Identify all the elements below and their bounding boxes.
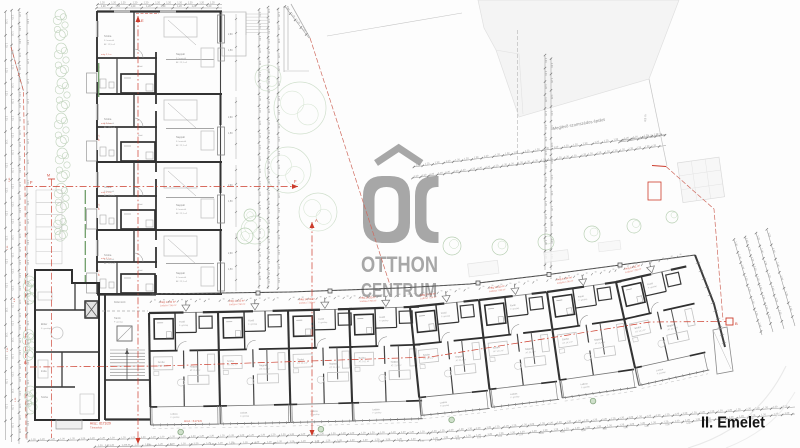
svg-text:1,20: 1,20 <box>267 159 270 164</box>
svg-text:90: 90 <box>408 294 410 296</box>
svg-text:1,20: 1,20 <box>191 435 196 438</box>
svg-text:1,20: 1,20 <box>550 111 553 116</box>
svg-text:1,20: 1,20 <box>267 39 270 44</box>
svg-text:1,20: 1,20 <box>90 437 95 440</box>
svg-text:1,20: 1,20 <box>550 239 553 244</box>
svg-text:1,20: 1,20 <box>26 260 29 265</box>
svg-text:1,20: 1,20 <box>544 151 547 156</box>
svg-text:1,20: 1,20 <box>131 436 136 439</box>
svg-text:90: 90 <box>527 281 529 283</box>
svg-text:1,20: 1,20 <box>170 443 175 446</box>
svg-text:MF 1,2: MF 1,2 <box>99 134 101 141</box>
svg-text:1,20: 1,20 <box>420 430 425 433</box>
svg-text:1,20: 1,20 <box>26 99 29 104</box>
svg-text:2,60: 2,60 <box>228 34 233 36</box>
svg-text:1,20: 1,20 <box>350 432 355 435</box>
svg-text:Nappali: Nappali <box>176 203 185 207</box>
svg-text:1,50: 1,50 <box>228 133 233 135</box>
svg-text:1,20: 1,20 <box>18 39 21 44</box>
svg-text:1,20: 1,20 <box>544 201 547 206</box>
svg-text:1,20: 1,20 <box>267 18 270 23</box>
svg-text:1,20: 1,20 <box>290 440 295 443</box>
svg-text:1,20: 1,20 <box>267 79 270 84</box>
svg-text:1,20: 1,20 <box>5 91 8 96</box>
svg-text:1,20: 1,20 <box>26 139 29 144</box>
svg-text:Lodzsa: Lodzsa <box>240 412 248 414</box>
svg-text:90: 90 <box>536 280 538 282</box>
svg-text:90: 90 <box>241 298 243 300</box>
svg-text:AT: 12,5 m²: AT: 12,5 m² <box>104 194 115 197</box>
svg-text:1,20: 1,20 <box>258 96 261 101</box>
svg-text:2,60: 2,60 <box>228 117 233 119</box>
svg-text:1,50: 1,50 <box>228 269 233 271</box>
svg-text:1,20: 1,20 <box>11 269 14 274</box>
svg-text:1,20: 1,20 <box>26 180 29 185</box>
svg-text:1,20: 1,20 <box>258 60 261 65</box>
svg-text:1,20: 1,20 <box>11 286 14 291</box>
svg-text:1,20: 1,20 <box>267 68 270 73</box>
svg-text:1,20: 1,20 <box>267 209 270 214</box>
svg-text:Iroda: Iroda <box>41 370 47 373</box>
svg-text:1,20: 1,20 <box>277 193 280 198</box>
svg-text:4,5 m: 4,5 m <box>643 114 647 122</box>
svg-text:1,20: 1,20 <box>5 236 8 241</box>
svg-text:1,20: 1,20 <box>544 137 547 142</box>
svg-text:MF 1,2: MF 1,2 <box>99 203 101 210</box>
svg-text:90: 90 <box>232 298 234 300</box>
svg-text:90: 90 <box>399 294 401 296</box>
svg-text:90: 90 <box>679 254 681 256</box>
svg-text:1,20: 1,20 <box>18 247 21 252</box>
svg-text:90: 90 <box>250 298 252 300</box>
svg-text:90: 90 <box>491 285 493 287</box>
svg-text:1,20: 1,20 <box>26 240 29 245</box>
svg-text:1,20: 1,20 <box>267 270 270 275</box>
svg-text:Nappali: Nappali <box>190 365 199 368</box>
svg-text:90: 90 <box>338 296 340 298</box>
svg-text:1,20: 1,20 <box>11 202 14 207</box>
svg-text:1,20: 1,20 <box>267 58 270 63</box>
svg-text:1,20: 1,20 <box>18 103 21 108</box>
svg-text:1,20: 1,20 <box>544 111 547 116</box>
svg-text:1,20: 1,20 <box>258 241 261 246</box>
svg-text:1,20: 1,20 <box>267 120 270 125</box>
svg-text:90: 90 <box>181 299 183 301</box>
svg-text:1,20: 1,20 <box>98 444 103 447</box>
svg-text:1,20: 1,20 <box>26 421 29 426</box>
svg-text:Közl.: Közl. <box>138 204 143 206</box>
svg-text:OTTHON: OTTHON <box>361 252 438 277</box>
svg-text:1,20: 1,20 <box>166 2 171 5</box>
svg-text:1,20: 1,20 <box>544 97 547 102</box>
svg-text:1,20: 1,20 <box>18 403 21 408</box>
svg-text:1,20: 1,20 <box>18 12 21 17</box>
svg-text:1,20: 1,20 <box>409 431 414 434</box>
svg-text:1,20: 1,20 <box>267 49 270 54</box>
svg-text:90: 90 <box>414 293 416 295</box>
svg-text:1,20: 1,20 <box>18 221 21 226</box>
svg-text:90: 90 <box>381 294 383 296</box>
svg-text:90: 90 <box>603 270 605 272</box>
svg-text:1,20: 1,20 <box>26 120 29 125</box>
svg-text:1,20: 1,20 <box>267 99 270 104</box>
svg-text:1,20: 1,20 <box>375 438 380 441</box>
svg-text:1,20: 1,20 <box>18 156 21 161</box>
svg-text:még 2,1 m: még 2,1 m <box>101 54 112 56</box>
svg-text:F: greslap: F: greslap <box>372 412 382 414</box>
svg-text:1,20: 1,20 <box>281 433 286 436</box>
svg-text:1,20: 1,20 <box>380 431 385 434</box>
svg-text:1,20: 1,20 <box>260 433 265 436</box>
svg-text:1,20: 1,20 <box>5 332 8 337</box>
svg-text:AT: 21,4 m²: AT: 21,4 m² <box>329 366 340 369</box>
svg-text:1,20: 1,20 <box>50 438 55 441</box>
svg-text:1,50: 1,50 <box>228 201 233 203</box>
svg-text:1,20: 1,20 <box>550 175 553 180</box>
svg-text:90: 90 <box>618 267 620 269</box>
svg-text:1,20: 1,20 <box>258 205 261 210</box>
svg-text:1,20: 1,20 <box>544 58 547 63</box>
svg-text:F: laminált: F: laminált <box>176 208 186 211</box>
svg-text:Közl.: Közl. <box>138 66 143 68</box>
svg-text:1,20: 1,20 <box>243 441 248 444</box>
svg-text:1,20: 1,20 <box>18 286 21 291</box>
svg-text:90: 90 <box>172 299 174 301</box>
svg-text:Hrsz.: 6171/9: Hrsz.: 6171/9 <box>184 419 202 423</box>
svg-text:1,20: 1,20 <box>391 431 396 434</box>
svg-text:90: 90 <box>347 296 349 298</box>
svg-text:1,20: 1,20 <box>60 437 65 440</box>
svg-text:1,20: 1,20 <box>289 433 294 436</box>
svg-text:1,20: 1,20 <box>5 355 8 360</box>
svg-text:1,20: 1,20 <box>11 65 14 70</box>
svg-text:Fürdő: Fürdő <box>379 316 386 319</box>
svg-text:90: 90 <box>586 273 588 275</box>
svg-text:90: 90 <box>627 265 629 267</box>
svg-text:1,20: 1,20 <box>277 250 280 255</box>
svg-text:1,20: 1,20 <box>11 321 14 326</box>
svg-text:Tároló: Tároló <box>114 317 121 320</box>
svg-text:1,20: 1,20 <box>18 415 21 420</box>
svg-text:1,20: 1,20 <box>40 438 45 441</box>
svg-text:Nappali: Nappali <box>329 362 338 365</box>
svg-text:1,20: 1,20 <box>11 372 14 377</box>
svg-text:Lodzsa: Lodzsa <box>372 409 380 411</box>
svg-text:1,20: 1,20 <box>544 240 547 245</box>
svg-text:1,20: 1,20 <box>363 439 368 442</box>
svg-text:1,20: 1,20 <box>258 108 261 113</box>
svg-text:F: laminált: F: laminált <box>104 39 114 42</box>
svg-text:F: F <box>294 179 297 184</box>
svg-text:1,20: 1,20 <box>11 168 14 173</box>
svg-text:90: 90 <box>390 294 392 296</box>
svg-text:1,20: 1,20 <box>18 130 21 135</box>
svg-text:Szoba: Szoba <box>104 117 112 121</box>
svg-text:1,20: 1,20 <box>26 321 29 326</box>
svg-text:1,20: 1,20 <box>11 388 14 393</box>
svg-text:1,20: 1,20 <box>258 168 261 173</box>
svg-text:1,20: 1,20 <box>258 156 261 161</box>
svg-text:90: 90 <box>500 284 502 286</box>
svg-text:1,20: 1,20 <box>267 89 270 94</box>
svg-text:90: 90 <box>199 299 201 301</box>
svg-text:90: 90 <box>644 262 646 264</box>
svg-text:90: 90 <box>440 290 442 292</box>
svg-text:90: 90 <box>595 271 597 273</box>
svg-text:1,20: 1,20 <box>18 92 21 97</box>
svg-text:90: 90 <box>329 296 331 298</box>
svg-text:Lodzsa 7,56 m²: Lodzsa 7,56 m² <box>360 299 377 303</box>
svg-text:1,20: 1,20 <box>277 264 280 269</box>
svg-text:1,20: 1,20 <box>18 338 21 343</box>
svg-text:1,20: 1,20 <box>5 43 8 48</box>
svg-text:Fürdő: Fürdő <box>318 318 325 321</box>
svg-text:Szoba: Szoba <box>104 185 112 189</box>
svg-text:1,20: 1,20 <box>101 5 106 8</box>
svg-text:Lodzsa: Lodzsa <box>170 414 178 416</box>
svg-text:1,20: 1,20 <box>5 283 8 288</box>
svg-text:90: 90 <box>163 299 165 301</box>
svg-text:1,20: 1,20 <box>277 124 280 129</box>
svg-text:90: 90 <box>259 298 261 300</box>
svg-text:1,20: 1,20 <box>11 235 14 240</box>
svg-text:1,20: 1,20 <box>277 137 280 142</box>
svg-text:1,20: 1,20 <box>18 350 21 355</box>
svg-text:1,20: 1,20 <box>550 78 553 83</box>
svg-text:1,20: 1,20 <box>370 431 375 434</box>
svg-text:AT: 22,1 m²: AT: 22,1 m² <box>176 61 187 64</box>
svg-text:1,20: 1,20 <box>277 53 280 58</box>
svg-text:90: 90 <box>482 286 484 288</box>
svg-text:1,20: 1,20 <box>192 5 197 8</box>
svg-text:1,20: 1,20 <box>229 434 234 437</box>
svg-text:Közl.: Közl. <box>138 270 143 272</box>
svg-text:1,20: 1,20 <box>267 130 270 135</box>
svg-text:A: A <box>315 218 318 223</box>
svg-text:1,20: 1,20 <box>258 181 261 186</box>
svg-text:1,20: 1,20 <box>267 200 270 205</box>
svg-text:AT: 12,5 m²: AT: 12,5 m² <box>104 262 115 265</box>
svg-text:90: 90 <box>467 288 469 290</box>
svg-text:1,20: 1,20 <box>11 405 14 410</box>
svg-text:1,20: 1,20 <box>267 108 270 113</box>
svg-text:1,20: 1,20 <box>18 260 21 265</box>
svg-text:Nappali: Nappali <box>176 135 185 139</box>
svg-text:2,60: 2,60 <box>228 253 233 255</box>
svg-text:1,20: 1,20 <box>5 404 8 409</box>
svg-text:90: 90 <box>449 289 451 291</box>
svg-text:1,20: 1,20 <box>267 259 270 264</box>
svg-text:Előtér: Előtér <box>41 323 47 326</box>
svg-text:1,20: 1,20 <box>26 281 29 286</box>
svg-text:90: 90 <box>423 292 425 294</box>
svg-text:Szoba: Szoba <box>104 34 112 38</box>
svg-text:1,20: 1,20 <box>26 159 29 164</box>
svg-text:MF 1,2: MF 1,2 <box>99 269 101 276</box>
svg-text:1,20: 1,20 <box>209 434 214 437</box>
svg-text:1,20: 1,20 <box>18 168 21 173</box>
svg-text:1,20: 1,20 <box>544 188 547 193</box>
svg-text:1,20: 1,20 <box>350 439 355 442</box>
svg-text:1,20: 1,20 <box>267 219 270 224</box>
svg-text:1,20: 1,20 <box>550 221 553 226</box>
svg-text:1,20: 1,20 <box>267 190 270 195</box>
svg-text:Lodzsa: Lodzsa <box>310 411 318 413</box>
svg-text:1,20: 1,20 <box>26 380 29 385</box>
svg-text:1,20: 1,20 <box>199 435 204 438</box>
svg-text:1,20: 1,20 <box>337 439 342 442</box>
svg-text:1,20: 1,20 <box>18 428 21 433</box>
svg-text:1,20: 1,20 <box>11 116 14 121</box>
svg-text:F: greslap: F: greslap <box>240 416 250 418</box>
svg-text:1,20: 1,20 <box>18 182 21 187</box>
svg-text:még 2,1 m: még 2,1 m <box>101 258 112 260</box>
svg-text:90: 90 <box>653 260 655 262</box>
svg-text:1,20: 1,20 <box>5 139 8 144</box>
svg-text:1,20: 1,20 <box>18 233 21 238</box>
svg-text:Lodzsa 7,56 m²: Lodzsa 7,56 m² <box>160 304 177 307</box>
svg-text:AT: 22,1 m²: AT: 22,1 m² <box>176 280 187 283</box>
svg-text:1,20: 1,20 <box>267 169 270 174</box>
svg-text:Szoba: Szoba <box>104 253 112 257</box>
svg-text:1,20: 1,20 <box>18 117 21 122</box>
svg-text:90: 90 <box>154 300 156 302</box>
svg-text:1,20: 1,20 <box>18 273 21 278</box>
svg-text:1,20: 1,20 <box>11 83 14 88</box>
svg-text:1,20: 1,20 <box>277 38 280 43</box>
svg-text:1,20: 1,20 <box>206 442 211 445</box>
svg-text:1,20: 1,20 <box>146 5 151 8</box>
svg-text:90: 90 <box>302 297 304 299</box>
svg-text:1,20: 1,20 <box>18 208 21 213</box>
svg-text:1,20: 1,20 <box>267 279 270 284</box>
svg-text:AT: 14,1 m²: AT: 14,1 m² <box>359 360 370 363</box>
svg-text:1,20: 1,20 <box>5 307 8 312</box>
svg-text:Hrsz.: 6171/29: Hrsz.: 6171/29 <box>90 422 111 426</box>
svg-text:még 2,1 m: még 2,1 m <box>101 123 112 125</box>
svg-text:1,20: 1,20 <box>267 8 270 13</box>
svg-text:1,20: 1,20 <box>220 434 225 437</box>
svg-text:1,20: 1,20 <box>277 235 280 240</box>
svg-text:1,20: 1,20 <box>258 72 261 77</box>
svg-text:1,20: 1,20 <box>177 5 182 8</box>
svg-text:1,20: 1,20 <box>277 440 282 443</box>
svg-text:1,20: 1,20 <box>134 443 139 446</box>
svg-text:1,20: 1,20 <box>131 5 136 8</box>
svg-text:1,20: 1,20 <box>301 433 306 436</box>
svg-text:1,20: 1,20 <box>11 133 14 138</box>
svg-text:Szoba: Szoba <box>158 361 165 364</box>
svg-text:1,20: 1,20 <box>18 26 21 31</box>
svg-text:90: 90 <box>363 295 365 297</box>
svg-text:F: greslap: F: greslap <box>41 327 52 330</box>
svg-text:1,20: 1,20 <box>70 437 75 440</box>
svg-text:1,20: 1,20 <box>151 436 156 439</box>
svg-text:Szoba: Szoba <box>227 360 235 363</box>
svg-text:1,20: 1,20 <box>18 313 21 318</box>
svg-text:Lodzsa 7,56 m²: Lodzsa 7,56 m² <box>299 301 316 304</box>
svg-text:1,20: 1,20 <box>26 59 29 64</box>
svg-text:90: 90 <box>190 299 192 301</box>
svg-text:1,20: 1,20 <box>158 443 163 446</box>
svg-text:1,20: 1,20 <box>5 188 8 193</box>
svg-text:1,20: 1,20 <box>170 435 175 438</box>
svg-text:1,20: 1,20 <box>550 191 553 196</box>
svg-text:1,20: 1,20 <box>26 201 29 206</box>
svg-text:90: 90 <box>432 291 434 293</box>
svg-text:B: B <box>735 321 738 326</box>
svg-text:F: laminált: F: laminált <box>176 140 186 143</box>
svg-text:1,20: 1,20 <box>258 217 261 222</box>
svg-text:1,20: 1,20 <box>258 83 261 88</box>
svg-text:1,20: 1,20 <box>267 149 270 154</box>
svg-text:1,20: 1,20 <box>341 432 346 435</box>
svg-text:90: 90 <box>268 298 270 300</box>
svg-text:90: 90 <box>550 278 552 280</box>
svg-text:F: laminált: F: laminált <box>176 276 186 279</box>
svg-text:1,20: 1,20 <box>401 431 406 434</box>
svg-text:1,20: 1,20 <box>31 438 36 441</box>
svg-text:90: 90 <box>671 256 673 258</box>
svg-text:II. Emelet: II. Emelet <box>701 415 766 432</box>
svg-text:1,20: 1,20 <box>326 439 331 442</box>
svg-text:1,20: 1,20 <box>110 436 115 439</box>
svg-text:1,20: 1,20 <box>5 19 8 24</box>
svg-text:B: B <box>24 360 27 365</box>
svg-text:1,20: 1,20 <box>5 259 8 264</box>
svg-text:1,20: 1,20 <box>81 437 86 440</box>
svg-text:Fürdő: Fürdő <box>248 319 255 322</box>
svg-text:1,20: 1,20 <box>301 440 306 443</box>
svg-text:1,20: 1,20 <box>544 214 547 219</box>
svg-text:1,20: 1,20 <box>267 179 270 184</box>
svg-text:1,20: 1,20 <box>11 337 14 342</box>
svg-text:90: 90 <box>568 275 570 277</box>
svg-text:90: 90 <box>612 269 614 271</box>
svg-text:1,20: 1,20 <box>18 299 21 304</box>
svg-text:1,20: 1,20 <box>121 436 126 439</box>
svg-text:1,20: 1,20 <box>218 442 223 445</box>
svg-text:1,20: 1,20 <box>277 208 280 213</box>
svg-text:1,20: 1,20 <box>258 133 261 138</box>
svg-text:1,20: 1,20 <box>141 436 146 439</box>
svg-text:Nappali: Nappali <box>391 360 400 363</box>
svg-text:AT: 21,4 m²: AT: 21,4 m² <box>391 364 402 367</box>
svg-text:1,20: 1,20 <box>258 264 261 269</box>
svg-text:1,20: 1,20 <box>18 142 21 147</box>
svg-text:Társasház: Társasház <box>90 426 103 430</box>
svg-text:1,20: 1,20 <box>11 31 14 36</box>
svg-text:1,20: 1,20 <box>18 364 21 369</box>
svg-text:1,20: 1,20 <box>11 99 14 104</box>
svg-text:1,20: 1,20 <box>361 431 366 434</box>
svg-text:F: greslap: F: greslap <box>379 320 389 322</box>
svg-text:AT: 12,5 m²: AT: 12,5 m² <box>104 126 115 129</box>
svg-text:E: E <box>141 18 144 23</box>
svg-text:1,20: 1,20 <box>258 191 261 196</box>
svg-text:1,20: 1,20 <box>267 229 270 234</box>
svg-text:1,20: 1,20 <box>109 444 114 447</box>
svg-text:1,20: 1,20 <box>199 2 204 5</box>
svg-text:90: 90 <box>559 276 561 278</box>
svg-text:F: greslap: F: greslap <box>114 322 124 324</box>
svg-text:1,20: 1,20 <box>271 433 276 436</box>
svg-text:1,20: 1,20 <box>11 423 14 428</box>
svg-text:90: 90 <box>518 282 520 284</box>
svg-text:90: 90 <box>662 258 664 260</box>
svg-text:90: 90 <box>458 288 460 290</box>
svg-text:1,20: 1,20 <box>18 52 21 57</box>
